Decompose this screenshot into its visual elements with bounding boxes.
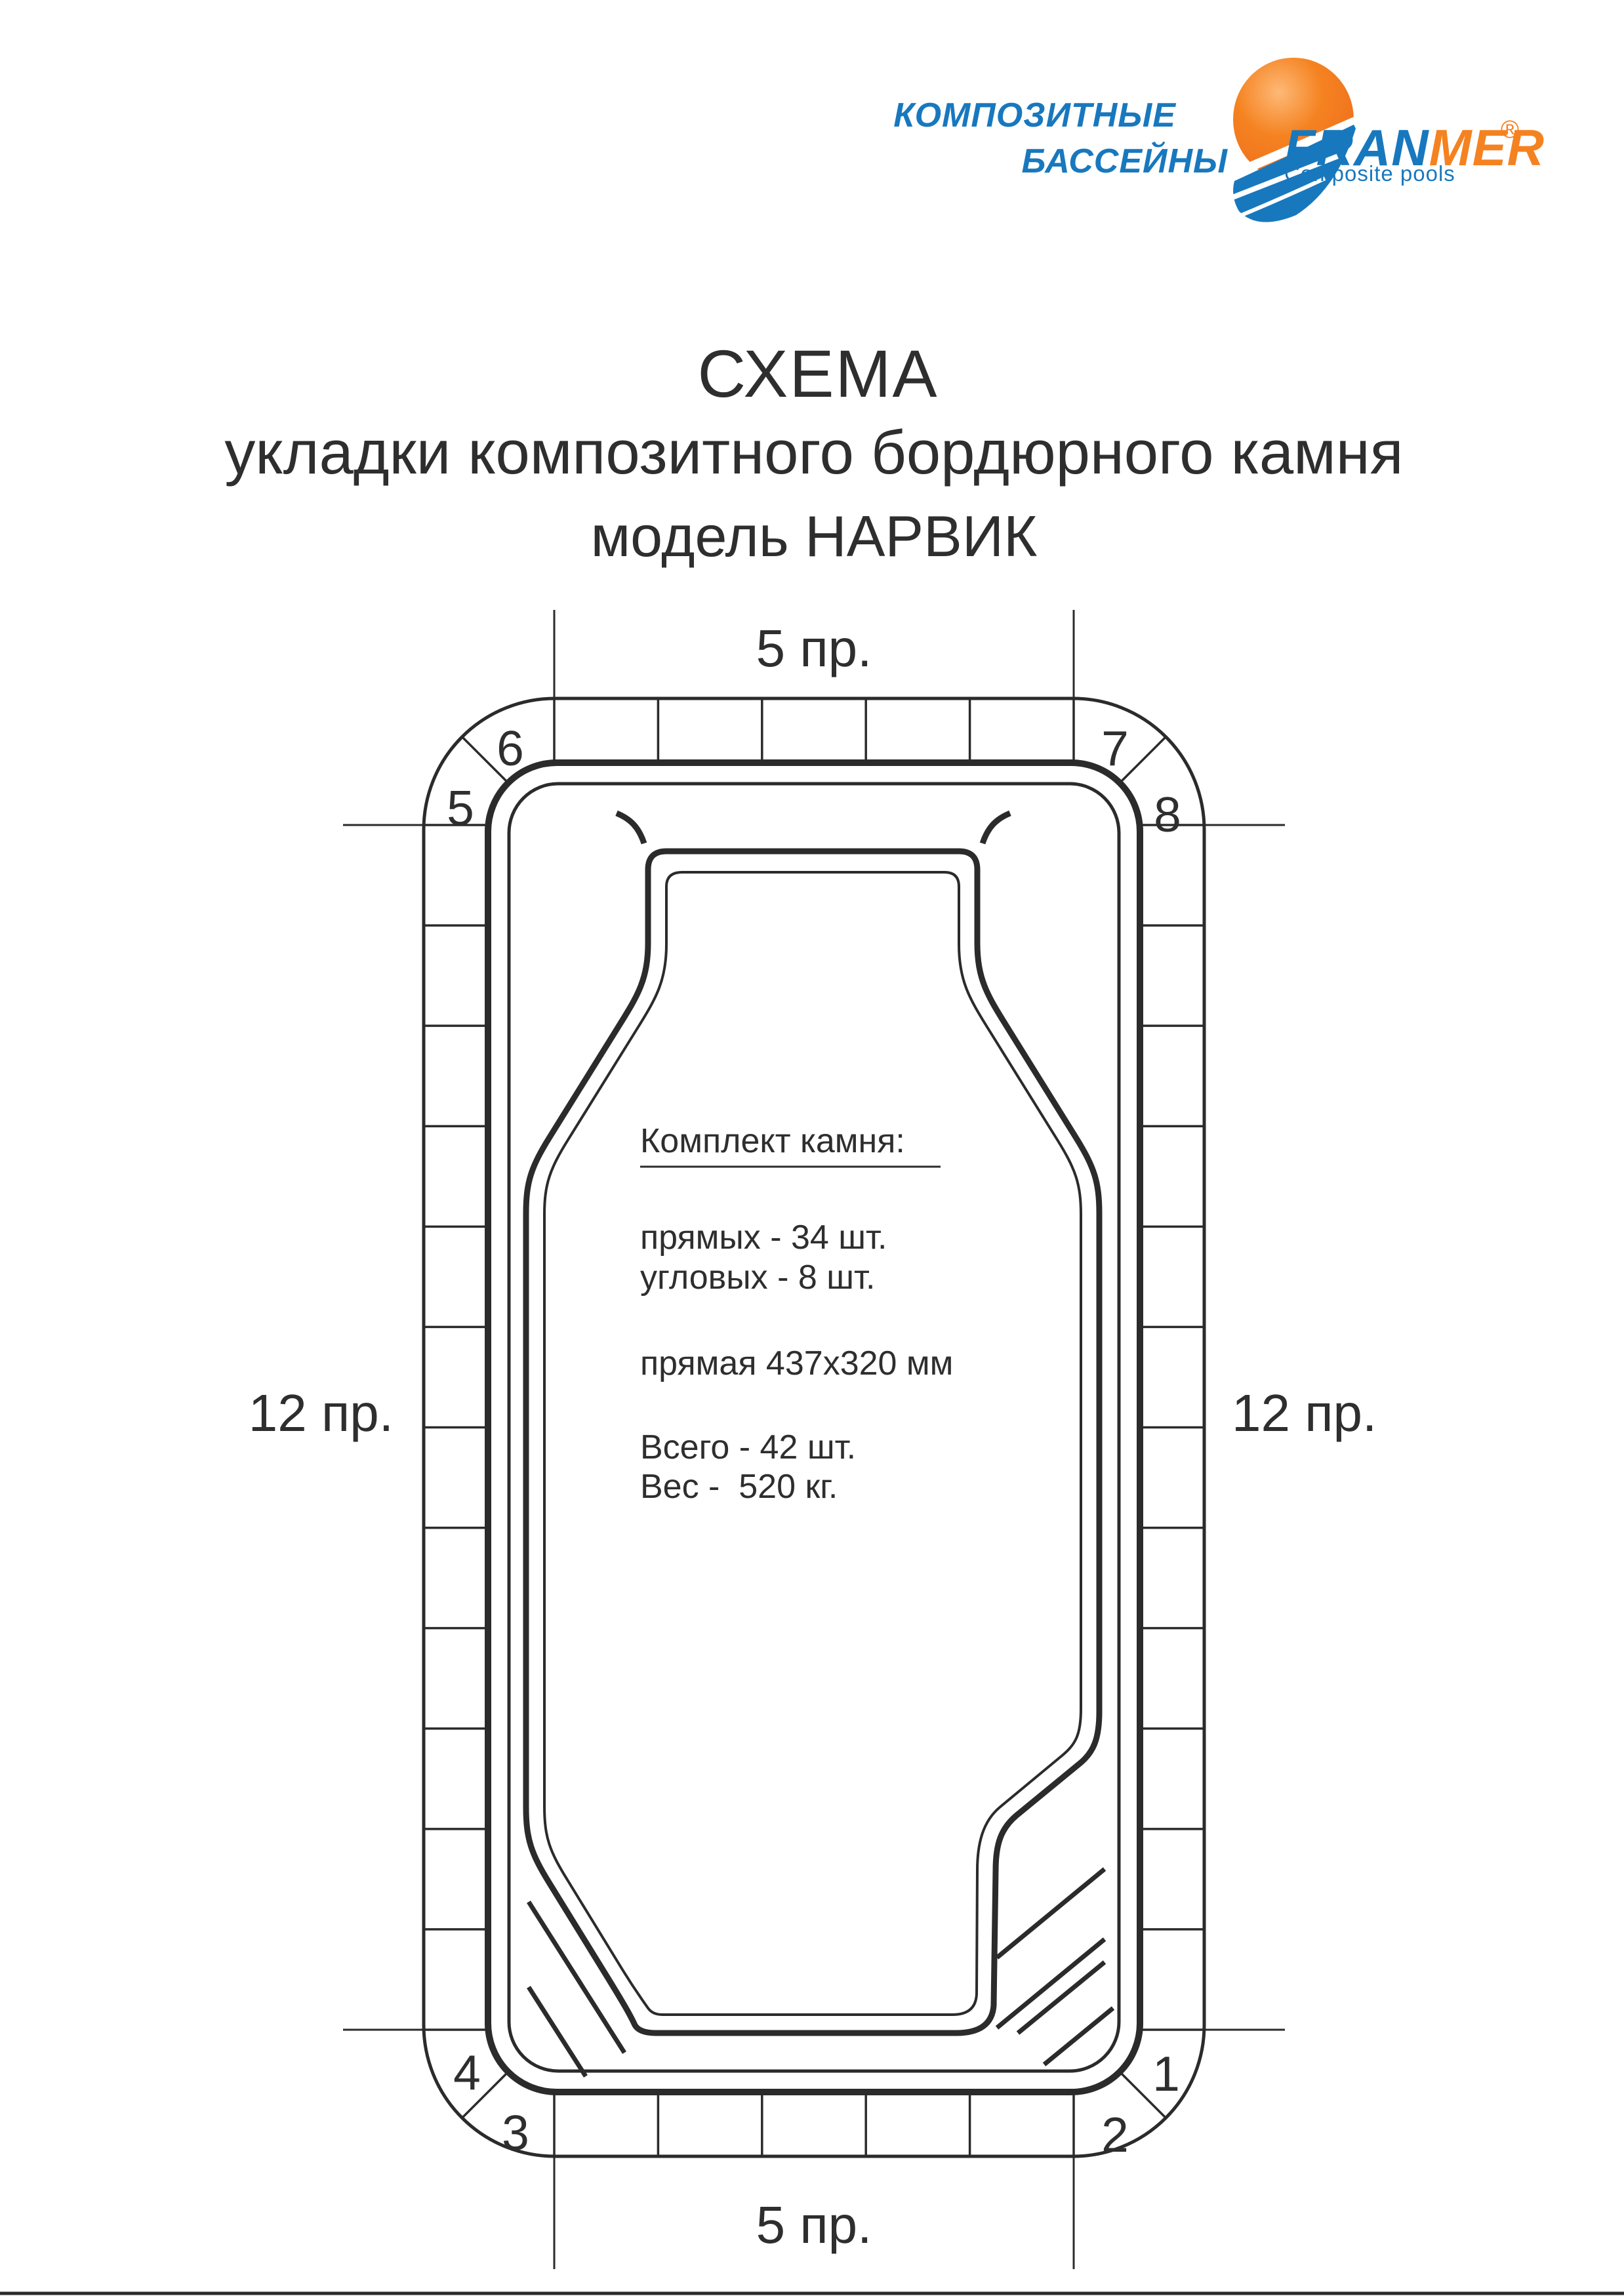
step-line bbox=[529, 1987, 586, 2076]
corner-stone-number: 5 bbox=[447, 780, 474, 836]
dimension-label-left: 12 пр. bbox=[249, 1384, 394, 1442]
logo-brand-line2: БАССЕЙНЫ bbox=[1021, 141, 1228, 180]
step-line bbox=[997, 1939, 1105, 2028]
right-stair-step-lines bbox=[997, 1869, 1113, 2064]
step-line bbox=[1044, 2008, 1113, 2064]
corner-stone-number: 3 bbox=[502, 2105, 529, 2160]
corner-stone-number: 2 bbox=[1101, 2107, 1129, 2162]
page-title: СХЕМА bbox=[698, 336, 939, 411]
info-header: Комплект камня: bbox=[640, 1122, 905, 1160]
info-line: прямых - 34 шт. bbox=[640, 1218, 887, 1257]
dimension-label-top: 5 пр. bbox=[756, 619, 872, 677]
stone-dividers bbox=[424, 698, 1204, 2156]
franmer-logo: КОМПОЗИТНЫЕ БАССЕЙНЫ FRANMER ® Composite… bbox=[893, 58, 1545, 222]
corner-stone-number: 7 bbox=[1101, 721, 1129, 776]
title-block: СХЕМА укладки композитного бордюрного ка… bbox=[224, 336, 1403, 569]
dimension-label-right: 12 пр. bbox=[1232, 1384, 1377, 1442]
stone-ring-outer-edge bbox=[424, 698, 1204, 2156]
corner-stone-number: 1 bbox=[1152, 2046, 1180, 2101]
step-line bbox=[997, 1869, 1105, 1958]
pool-diagram: 6 5 7 8 4 3 1 2 5 пр. 5 пр. 12 пр. 12 пр… bbox=[249, 610, 1377, 2269]
info-line: Всего - 42 шт. bbox=[640, 1428, 856, 1466]
model-name: модель НАРВИК bbox=[591, 504, 1038, 569]
logo-tagline: Composite pools bbox=[1284, 161, 1455, 186]
info-line: угловых - 8 шт. bbox=[640, 1259, 875, 1297]
pool-rim-inner bbox=[509, 784, 1119, 2071]
bench-edge-left-tail bbox=[617, 813, 644, 843]
narvik-border-stone-schema: КОМПОЗИТНЫЕ БАССЕЙНЫ FRANMER ® Composite… bbox=[0, 0, 1624, 2296]
page-subtitle: укладки композитного бордюрного камня bbox=[224, 418, 1403, 487]
corner-stone-number: 6 bbox=[497, 721, 524, 776]
corner-stone-number: 8 bbox=[1154, 787, 1181, 842]
pool-rim-outer bbox=[488, 763, 1140, 2092]
dimension-label-bottom: 5 пр. bbox=[756, 2196, 872, 2254]
registered-trademark-icon: ® bbox=[1501, 116, 1519, 144]
bench-edge-right-tail bbox=[983, 813, 1010, 843]
info-line: Вес - 520 кг. bbox=[640, 1468, 838, 1506]
info-line: прямая 437х320 мм bbox=[640, 1344, 953, 1382]
stone-kit-info: Комплект камня: прямых - 34 шт. угловых … bbox=[640, 1122, 953, 1506]
corner-stone-number: 4 bbox=[453, 2045, 481, 2100]
logo-brand-line1: КОМПОЗИТНЫЕ bbox=[893, 96, 1176, 134]
